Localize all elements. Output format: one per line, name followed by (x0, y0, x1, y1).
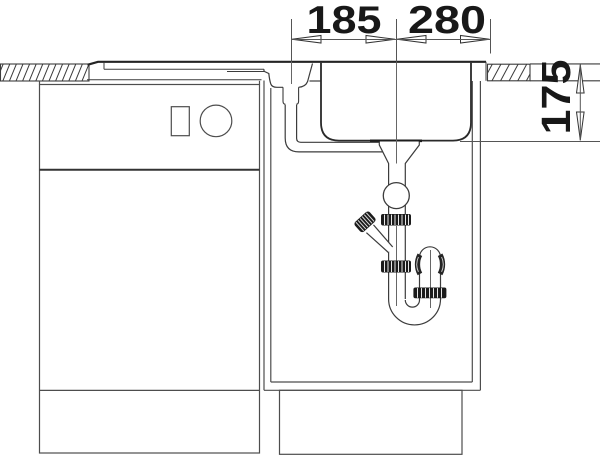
svg-text:175: 175 (533, 60, 579, 135)
svg-text:280: 280 (408, 0, 486, 42)
